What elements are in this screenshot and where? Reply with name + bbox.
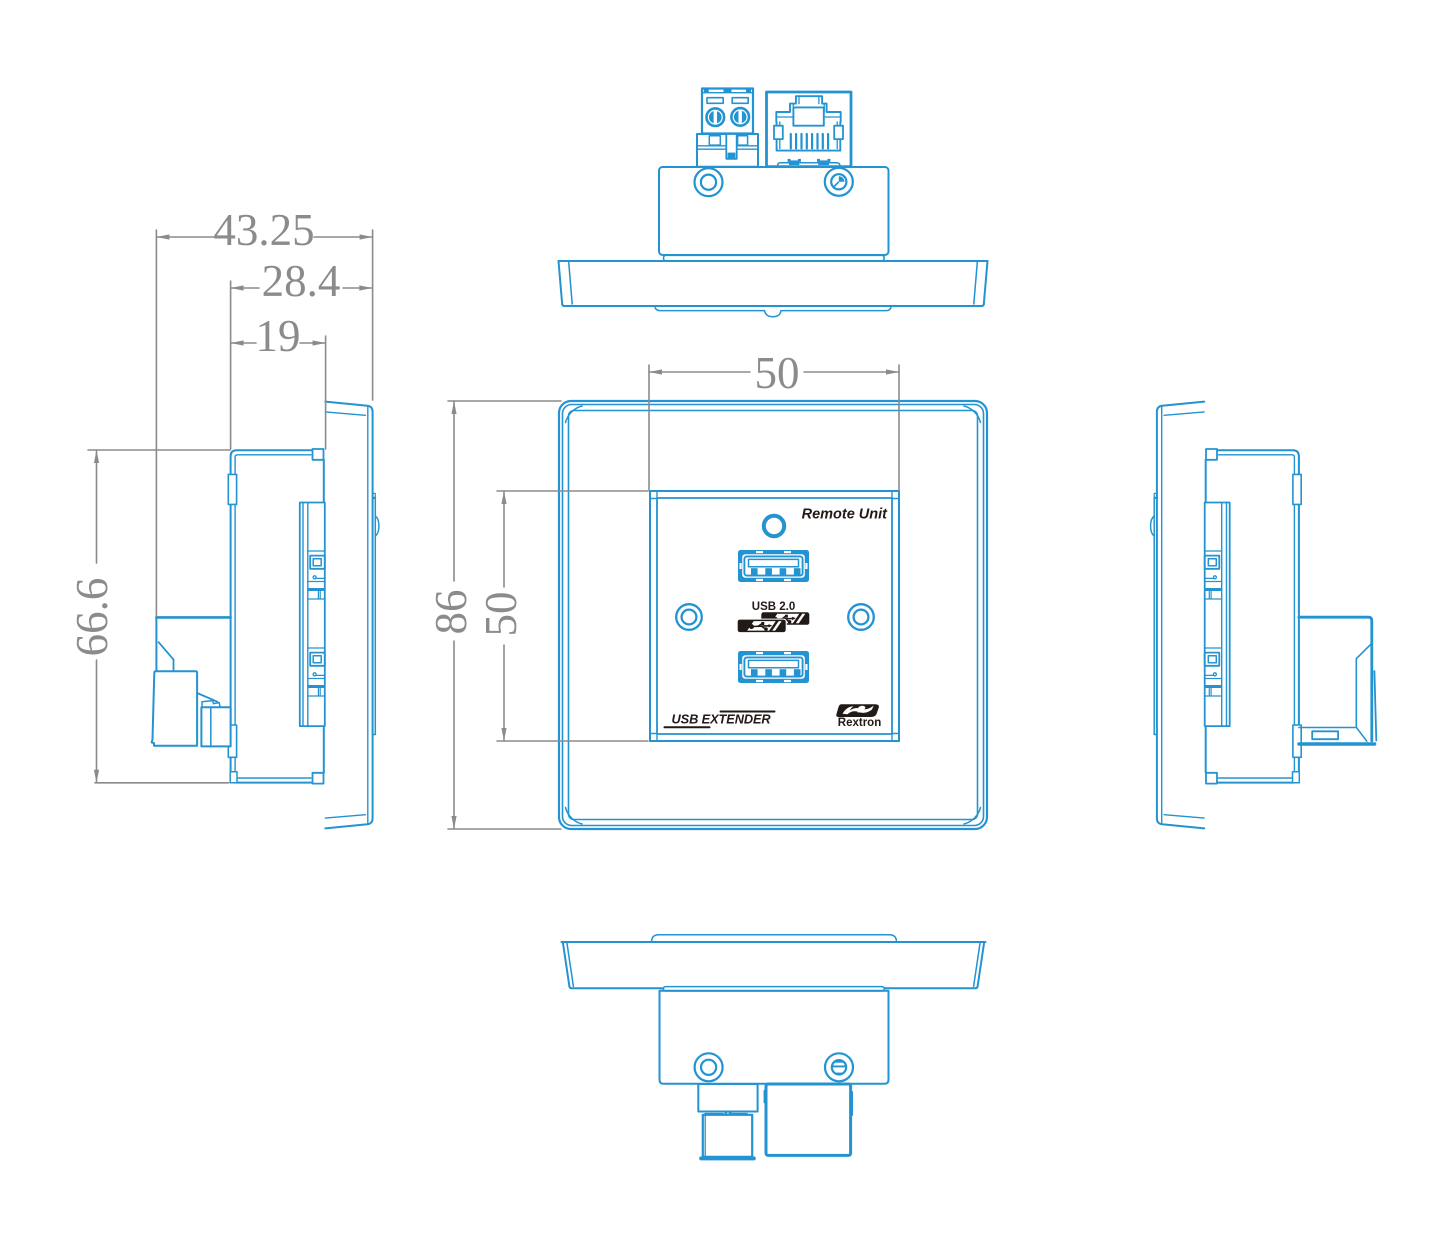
svg-text:Remote Unit: Remote Unit <box>802 507 889 523</box>
svg-text:USB 2.0: USB 2.0 <box>752 601 795 613</box>
svg-text:Rextron: Rextron <box>838 717 881 729</box>
svg-text:86: 86 <box>426 590 476 635</box>
svg-text:50: 50 <box>755 348 800 398</box>
svg-text:USB EXTENDER: USB EXTENDER <box>672 711 772 726</box>
svg-text:66.6: 66.6 <box>67 578 117 657</box>
svg-text:50: 50 <box>476 592 526 637</box>
svg-text:19: 19 <box>256 311 301 361</box>
svg-text:28.4: 28.4 <box>262 256 341 306</box>
svg-text:43.25: 43.25 <box>213 205 314 255</box>
